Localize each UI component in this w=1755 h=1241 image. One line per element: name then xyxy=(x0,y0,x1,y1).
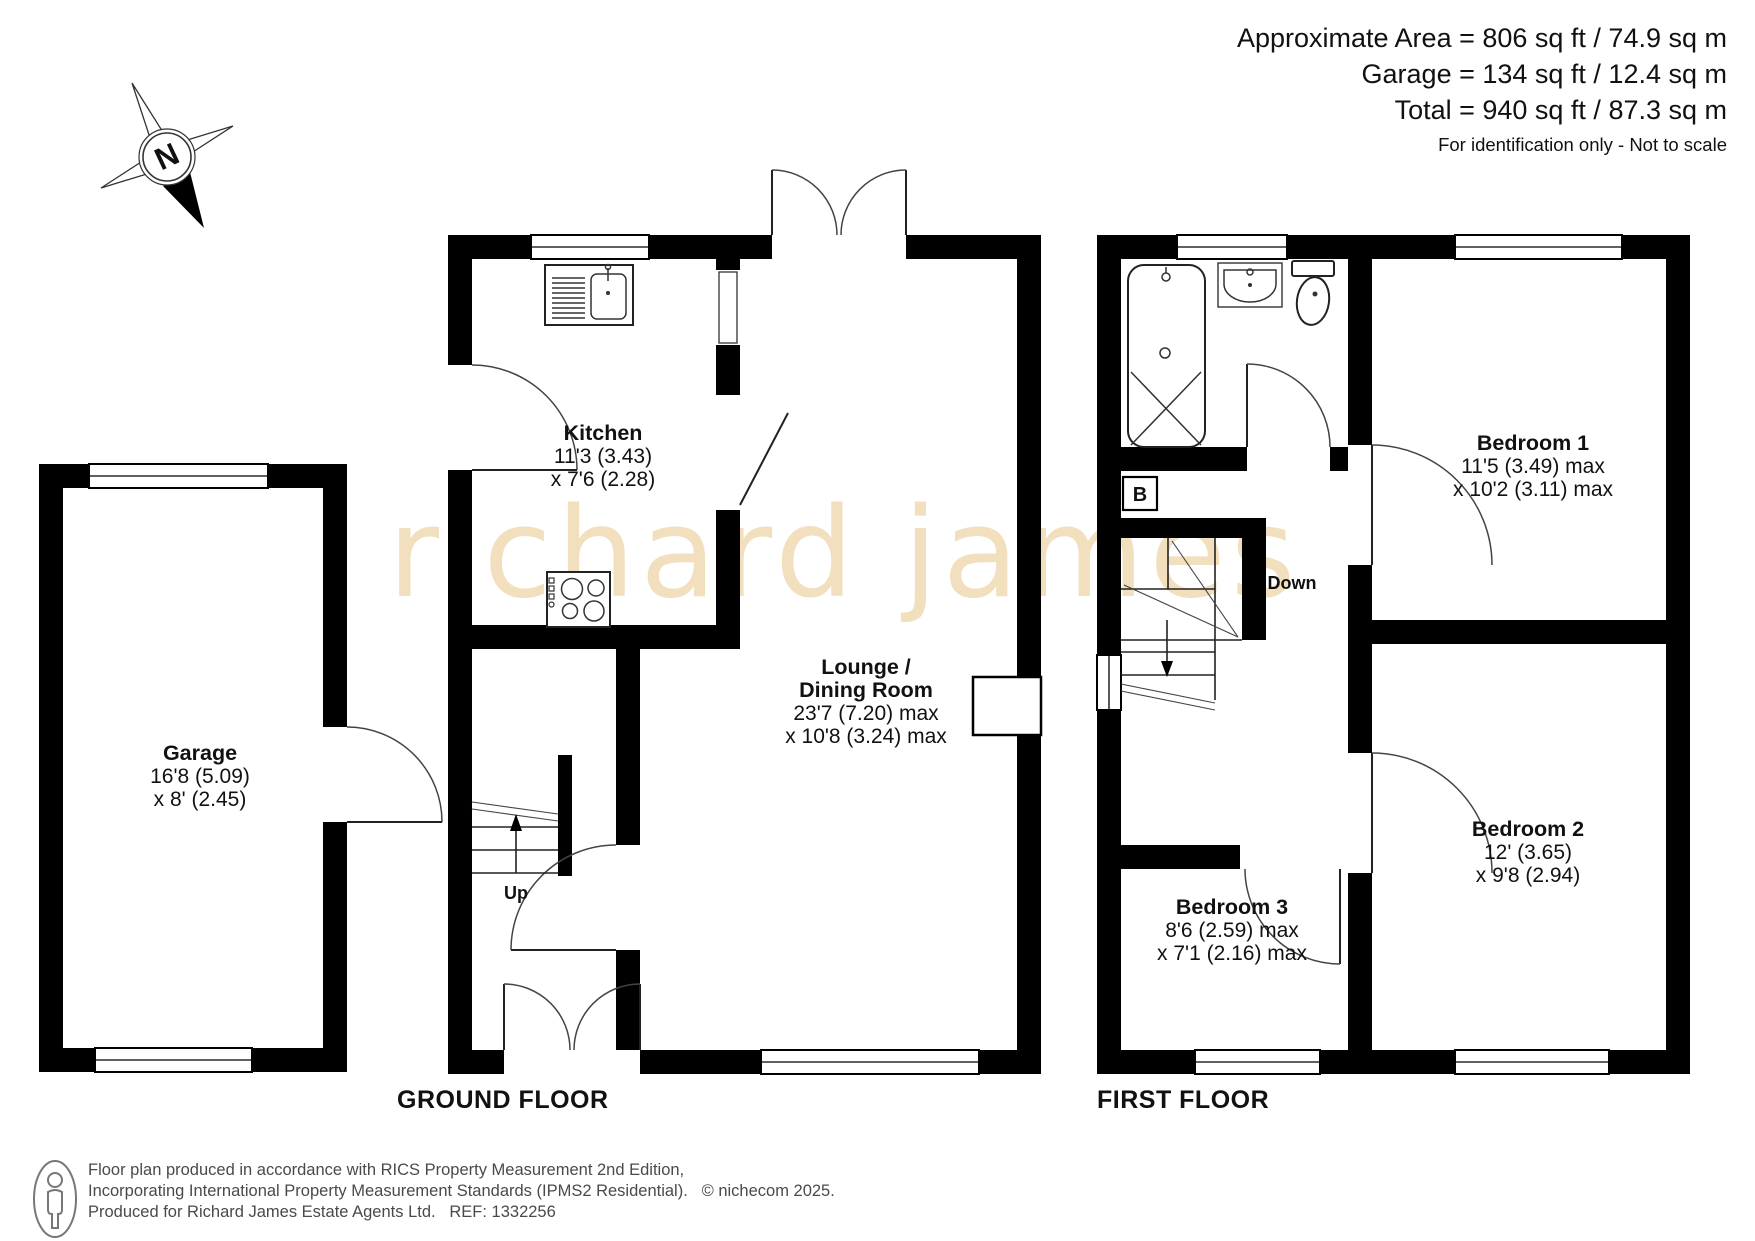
garage-window xyxy=(95,1048,252,1072)
first-floor-label: FIRST FLOOR xyxy=(1097,1086,1269,1115)
bathroom-door-arc xyxy=(1247,364,1330,447)
lounge-window xyxy=(761,1050,979,1074)
stairs-up: Up xyxy=(472,802,558,903)
ground-floor-plan: Up xyxy=(448,170,1041,1074)
lounge-dim2: x 10'8 (3.24) max xyxy=(785,725,947,748)
bedroom2-window xyxy=(1455,1050,1609,1074)
passage-door-arc xyxy=(347,727,442,822)
footer-line2: Incorporating International Property Mea… xyxy=(88,1181,835,1202)
area-summary: Approximate Area = 806 sq ft / 74.9 sq m… xyxy=(1237,20,1727,156)
stairs-up-label: Up xyxy=(504,883,528,903)
kitchen-sink xyxy=(545,265,633,326)
footer-disclaimer: Floor plan produced in accordance with R… xyxy=(88,1160,835,1223)
kitchen-dim2: x 7'6 (2.28) xyxy=(551,468,655,491)
bedroom3-name: Bedroom 3 xyxy=(1176,895,1288,919)
reference-number: REF: 1332256 xyxy=(449,1203,555,1221)
french-doors xyxy=(772,170,906,235)
footer-line1: Floor plan produced in accordance with R… xyxy=(88,1160,835,1181)
boiler-cupboard: B xyxy=(1123,477,1157,510)
kitchen-window xyxy=(531,235,649,259)
bedroom2-name: Bedroom 2 xyxy=(1472,817,1584,841)
bedroom3-dim1: 8'6 (2.59) max xyxy=(1165,919,1299,942)
lounge-dim1: 23'7 (7.20) max xyxy=(793,702,939,725)
garage-area-line: Garage = 134 sq ft / 12.4 sq m xyxy=(1237,56,1727,92)
kitchen-hatch-panel xyxy=(719,272,737,343)
stairs-down-label: Down xyxy=(1268,573,1317,593)
lounge-name2: Dining Room xyxy=(799,678,933,702)
hob xyxy=(547,572,610,627)
garage-name: Garage xyxy=(163,741,237,765)
ground-floor-label: GROUND FLOOR xyxy=(397,1086,609,1115)
bedroom2-door-arc xyxy=(1372,753,1492,873)
total-area-line: Total = 940 sq ft / 87.3 sq m xyxy=(1237,92,1727,128)
bedroom2-dim1: 12' (3.65) xyxy=(1484,841,1572,864)
footer-line3: Produced for Richard James Estate Agents… xyxy=(88,1202,835,1223)
identification-note: For identification only - Not to scale xyxy=(1237,134,1727,156)
wash-basin xyxy=(1218,263,1282,307)
garage-door xyxy=(89,464,268,488)
toilet xyxy=(1292,261,1334,327)
landing-window xyxy=(1097,655,1121,710)
bedroom2-dim2: x 9'8 (2.94) xyxy=(1476,864,1580,887)
bathroom-window xyxy=(1177,235,1287,259)
boiler-label: B xyxy=(1133,484,1147,506)
garage-dim2: x 8' (2.45) xyxy=(154,788,247,811)
garage-plan: Garage 16'8 (5.09) x 8' (2.45) xyxy=(39,464,442,1072)
bedroom3-window xyxy=(1195,1050,1320,1074)
first-floor-plan: B xyxy=(1097,235,1690,1074)
bedroom1-window xyxy=(1455,235,1622,259)
floorplan-page: richard james Approximate Area = 806 sq … xyxy=(0,0,1755,1241)
bedroom1-name: Bedroom 1 xyxy=(1477,431,1589,455)
garage-dim1: 16'8 (5.09) xyxy=(150,765,250,788)
lounge-name1: Lounge / xyxy=(821,655,911,679)
chimney-breast xyxy=(973,677,1041,735)
kitchen-name: Kitchen xyxy=(564,421,643,445)
kitchen-dim1: 11'3 (3.43) xyxy=(554,445,652,468)
approx-area-line: Approximate Area = 806 sq ft / 74.9 sq m xyxy=(1237,20,1727,56)
copyright: © nichecom 2025. xyxy=(702,1182,835,1200)
bathtub xyxy=(1128,265,1205,447)
bedroom1-dim2: x 10'2 (3.11) max xyxy=(1453,478,1614,501)
person-icon xyxy=(48,1190,62,1228)
bedroom3-dim2: x 7'1 (2.16) max xyxy=(1157,942,1307,965)
kitchen-door-leaf xyxy=(740,413,788,505)
bedroom1-dim1: 11'5 (3.49) max xyxy=(1461,455,1605,478)
stairs-down: Down xyxy=(1121,538,1317,710)
compass-rose: N xyxy=(101,83,233,228)
nichecom-logo xyxy=(30,1158,82,1240)
